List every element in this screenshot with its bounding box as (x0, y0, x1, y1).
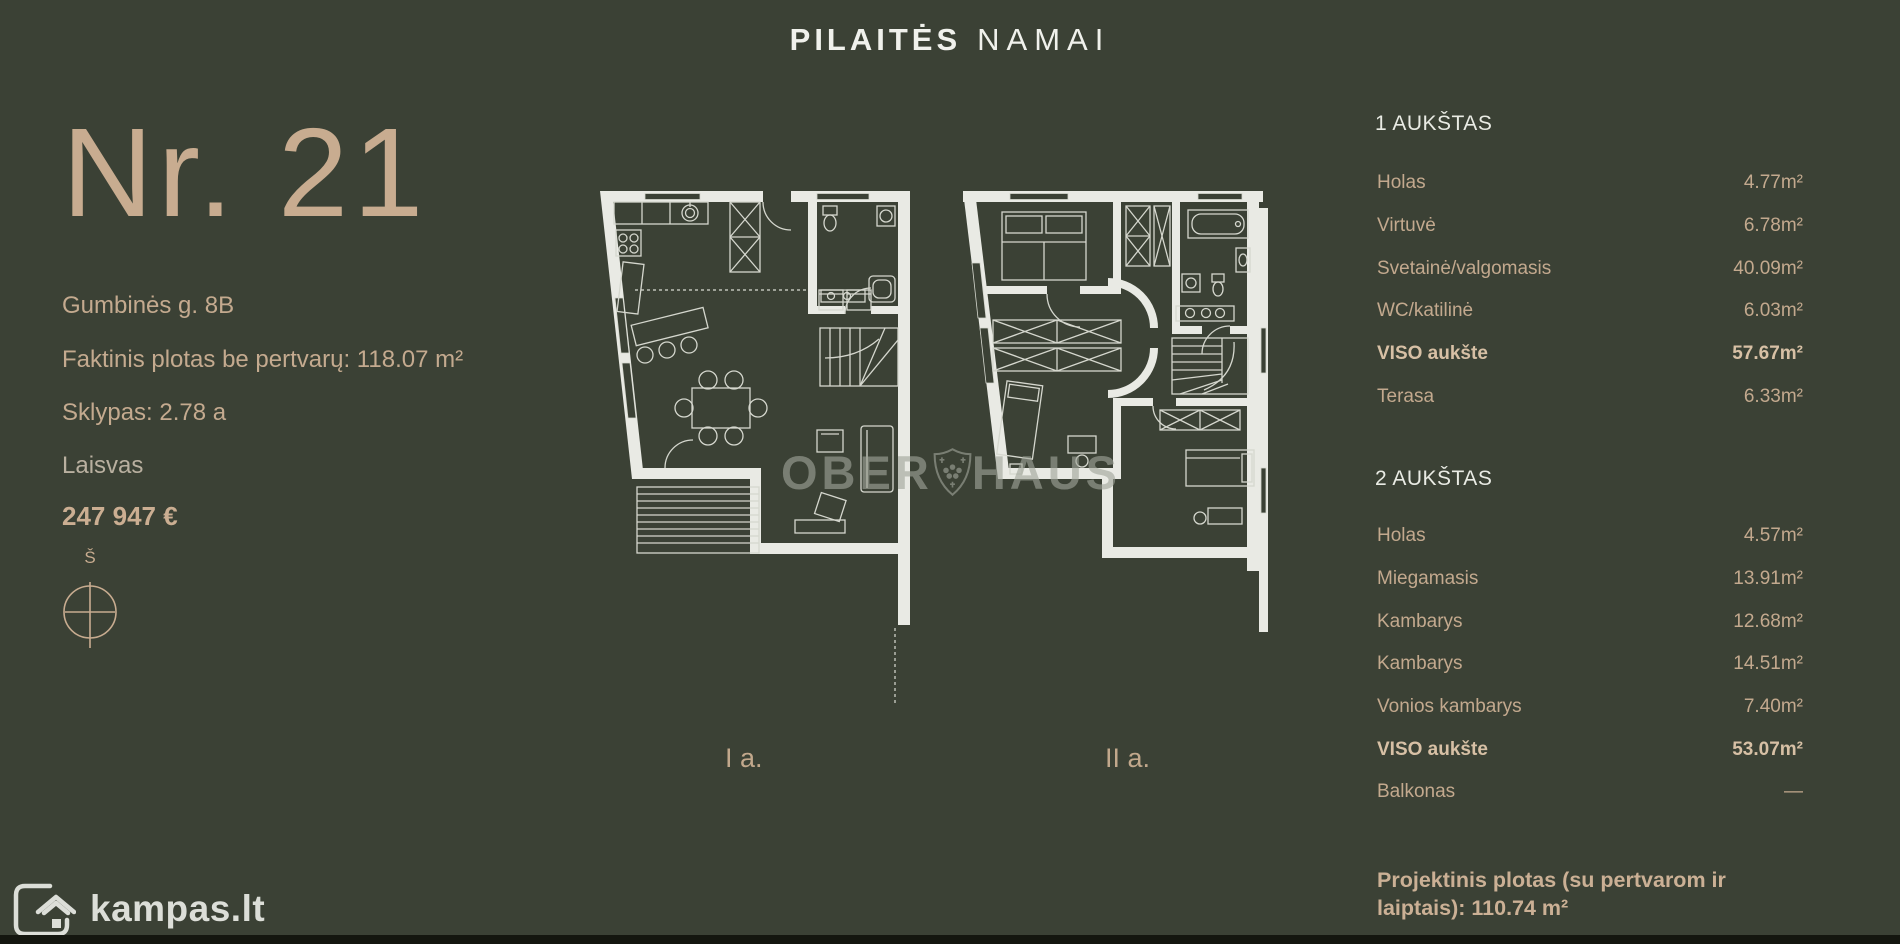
room-label: Kambarys (1377, 653, 1463, 675)
table-row: Holas 4.77m² (1377, 162, 1803, 205)
room-label: VISO aukšte (1377, 739, 1488, 761)
room-label: Holas (1377, 172, 1426, 194)
table-row: Terasa 6.33m² (1377, 375, 1803, 418)
watermark: OBER HAUS (781, 444, 1121, 500)
floor-2-title: 2 AUKŠTAS (1375, 467, 1492, 491)
room-area: 13.91m² (1733, 568, 1803, 590)
room-label: Vonios kambarys (1377, 696, 1522, 718)
room-area: — (1784, 781, 1803, 803)
table-row: Virtuvė 6.78m² (1377, 205, 1803, 248)
floor-plan-2-drawing (950, 178, 1290, 708)
room-area: 57.67m² (1732, 343, 1803, 365)
status-badge: Laisvas (62, 452, 143, 480)
room-area: 4.77m² (1744, 172, 1803, 194)
listing-page: PILAITĖSNAMAI Nr. 21 Gumbinės g. 8B Fakt… (0, 0, 1900, 944)
table-row: Vonios kambarys 7.40m² (1377, 686, 1803, 729)
room-area: 7.40m² (1744, 696, 1803, 718)
bottom-strip (0, 935, 1900, 944)
room-label: Holas (1377, 525, 1426, 547)
room-area: 6.03m² (1744, 300, 1803, 322)
project-logo: PILAITĖSNAMAI (0, 22, 1900, 58)
room-label: Balkonas (1377, 781, 1455, 803)
floor-plan-1-label: I a. (725, 743, 763, 774)
table-row: Miegamasis 13.91m² (1377, 558, 1803, 601)
compass-north-label: Š (62, 548, 118, 568)
table-row-total: VISO aukšte 57.67m² (1377, 333, 1803, 376)
project-logo-secondary: NAMAI (977, 22, 1110, 57)
room-label: Virtuvė (1377, 215, 1436, 237)
room-area: 14.51m² (1733, 653, 1803, 675)
table-row-total: VISO aukšte 53.07m² (1377, 728, 1803, 771)
room-area: 6.33m² (1744, 386, 1803, 408)
floor-plan-1-drawing (595, 178, 935, 708)
room-label: Svetainė/valgomasis (1377, 258, 1551, 280)
project-logo-primary: PILAITĖS (790, 22, 962, 57)
table-row: Balkonas — (1377, 771, 1803, 814)
table-row: Svetainė/valgomasis 40.09m² (1377, 247, 1803, 290)
table-row: Holas 4.57m² (1377, 515, 1803, 558)
table-row: Kambarys 14.51m² (1377, 643, 1803, 686)
table-row: WC/katilinė 6.03m² (1377, 290, 1803, 333)
floor-1-table: Holas 4.77m² Virtuvė 6.78m² Svetainė/val… (1377, 162, 1803, 418)
watermark-left-text: OBER (781, 445, 933, 500)
watermark-right-text: HAUS (972, 445, 1121, 500)
room-area: 40.09m² (1733, 258, 1803, 280)
site-logo-link[interactable]: kampas.lt (10, 880, 265, 938)
listing-plot: Sklypas: 2.78 a (62, 399, 226, 427)
compass-icon (61, 578, 119, 650)
listing-number: Nr. 21 (62, 110, 428, 236)
site-logo-text: kampas.lt (90, 888, 265, 930)
room-area: 12.68m² (1733, 611, 1803, 633)
room-label: Kambarys (1377, 611, 1463, 633)
room-area: 6.78m² (1744, 215, 1803, 237)
floor-1-title: 1 AUKŠTAS (1375, 112, 1492, 136)
floor-2-table: Holas 4.57m² Miegamasis 13.91m² Kambarys… (1377, 515, 1803, 814)
room-area: 4.57m² (1744, 525, 1803, 547)
kampas-house-icon (10, 880, 76, 938)
floor-plan-2-label: II a. (1105, 743, 1150, 774)
table-row: Kambarys 12.68m² (1377, 600, 1803, 643)
room-label: Terasa (1377, 386, 1434, 408)
listing-price: 247 947 € (62, 501, 178, 532)
room-area: 53.07m² (1732, 739, 1803, 761)
listing-area: Faktinis plotas be pertvarų: 118.07 m² (62, 346, 463, 374)
listing-address: Gumbinės g. 8B (62, 292, 234, 320)
watermark-crest-icon (933, 443, 972, 501)
projected-area-note: Projektinis plotas (su pertvarom ir laip… (1377, 866, 1739, 923)
room-label: VISO aukšte (1377, 343, 1488, 365)
room-label: WC/katilinė (1377, 300, 1473, 322)
room-label: Miegamasis (1377, 568, 1478, 590)
